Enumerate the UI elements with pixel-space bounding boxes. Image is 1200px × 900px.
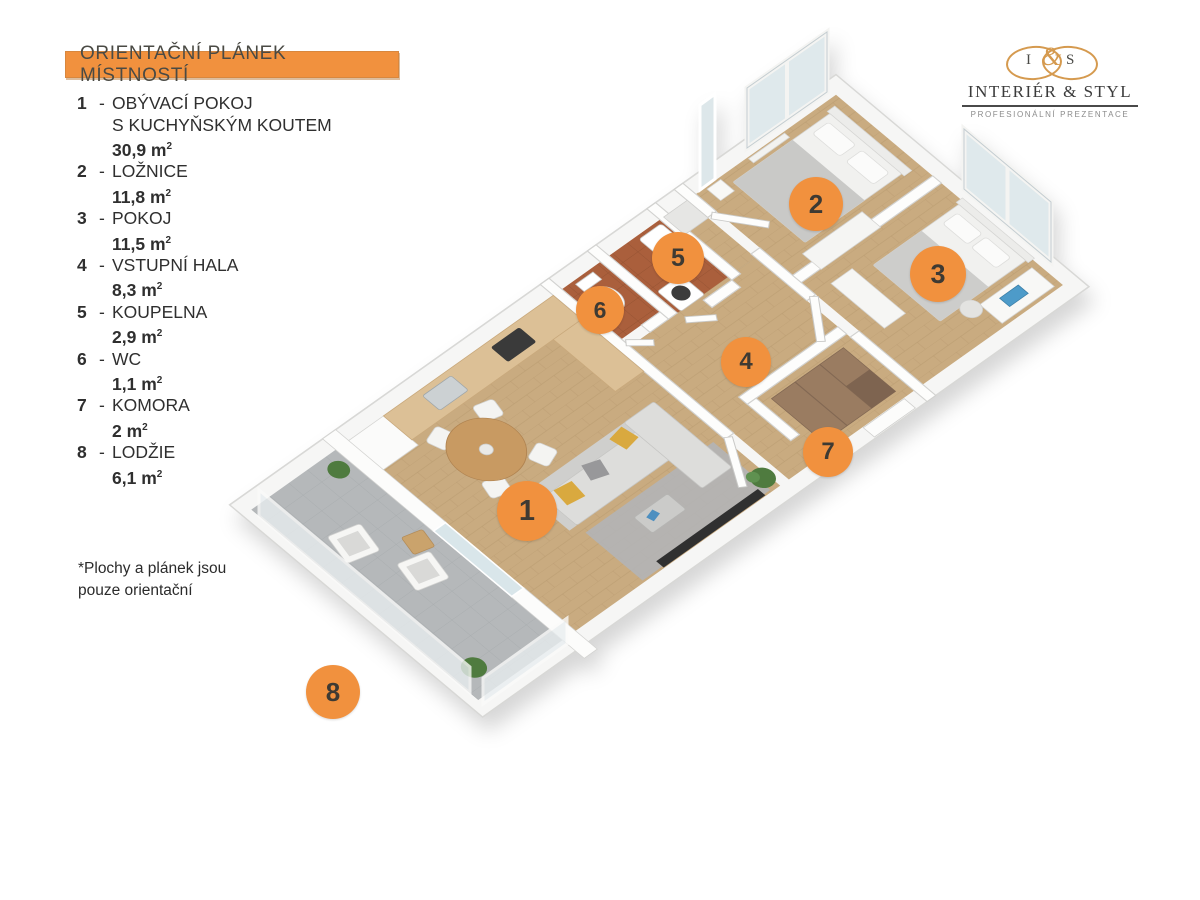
legend-item-area: 8,3 m2 — [77, 276, 377, 301]
legend-item-name: VSTUPNÍ HALA — [112, 255, 238, 277]
legend-item-number: 8 — [77, 442, 99, 464]
room-legend: 1-OBÝVACÍ POKOJS KUCHYŇSKÝM KOUTEM30,9 m… — [77, 93, 377, 489]
legend-item-name: KOUPELNA — [112, 302, 207, 324]
legend-item-7: 7-KOMORA2 m2 — [77, 395, 377, 442]
logo-name: INTERIÉR & STYL — [962, 80, 1138, 107]
legend-item-dash: - — [99, 161, 112, 183]
legend-item-number: 1 — [77, 93, 99, 115]
legend-item-number: 4 — [77, 255, 99, 277]
page: 12345678 ORIENTAČNÍ PLÁNEK MÍSTNOSTÍ 1-O… — [0, 0, 1200, 900]
legend-item-name: WC — [112, 349, 141, 371]
legend-item-dash: - — [99, 255, 112, 277]
footnote: *Plochy a plánek jsou pouze orientační — [78, 558, 226, 602]
legend-item-area: 2 m2 — [77, 417, 377, 442]
legend-item-dash: - — [99, 442, 112, 464]
logo-letter-s: S — [1066, 52, 1074, 69]
legend-item-area: 1,1 m2 — [77, 370, 377, 395]
legend-item-8: 8-LODŽIE6,1 m2 — [77, 442, 377, 489]
legend-item-4: 4-VSTUPNÍ HALA8,3 m2 — [77, 255, 377, 302]
legend-item-number: 7 — [77, 395, 99, 417]
legend-item-number: 5 — [77, 302, 99, 324]
legend-item-name: POKOJ — [112, 208, 171, 230]
logo-letter-i: I — [1026, 52, 1031, 69]
legend-item-5: 5-KOUPELNA2,9 m2 — [77, 302, 377, 349]
legend-item-dash: - — [99, 302, 112, 324]
legend-item-dash: - — [99, 93, 112, 115]
legend-item-1: 1-OBÝVACÍ POKOJS KUCHYŇSKÝM KOUTEM30,9 m… — [77, 93, 377, 161]
logo-ampersand: & — [1041, 42, 1061, 72]
legend-item-6: 6-WC1,1 m2 — [77, 349, 377, 396]
company-logo: I & S INTERIÉR & STYL PROFESIONÁLNÍ PREZ… — [975, 44, 1125, 119]
legend-item-name: KOMORA — [112, 395, 190, 417]
footnote-line2: pouze orientační — [78, 580, 226, 602]
legend-item-name-cont: S KUCHYŇSKÝM KOUTEM — [77, 115, 377, 137]
legend-item-area: 30,9 m2 — [77, 136, 377, 161]
logo-tagline: PROFESIONÁLNÍ PREZENTACE — [971, 110, 1130, 119]
legend-item-number: 3 — [77, 208, 99, 230]
legend-item-dash: - — [99, 208, 112, 230]
legend-item-dash: - — [99, 349, 112, 371]
legend-item-2: 2-LOŽNICE11,8 m2 — [77, 161, 377, 208]
logo-monogram-icon: I & S — [1002, 44, 1098, 80]
legend-item-area: 6,1 m2 — [77, 464, 377, 489]
footnote-line1: *Plochy a plánek jsou — [78, 558, 226, 580]
legend-item-number: 6 — [77, 349, 99, 371]
legend-item-dash: - — [99, 395, 112, 417]
legend-item-area: 2,9 m2 — [77, 323, 377, 348]
legend-item-number: 2 — [77, 161, 99, 183]
standing-mirror — [700, 94, 715, 190]
legend-item-area: 11,5 m2 — [77, 230, 377, 255]
legend-item-name: OBÝVACÍ POKOJ — [112, 93, 253, 115]
legend-item-name: LODŽIE — [112, 442, 175, 464]
legend-item-area: 11,8 m2 — [77, 183, 377, 208]
legend-item-3: 3-POKOJ11,5 m2 — [77, 208, 377, 255]
legend-item-name: LOŽNICE — [112, 161, 188, 183]
page-title: ORIENTAČNÍ PLÁNEK MÍSTNOSTÍ — [65, 51, 399, 78]
page-title-text: ORIENTAČNÍ PLÁNEK MÍSTNOSTÍ — [80, 43, 398, 87]
